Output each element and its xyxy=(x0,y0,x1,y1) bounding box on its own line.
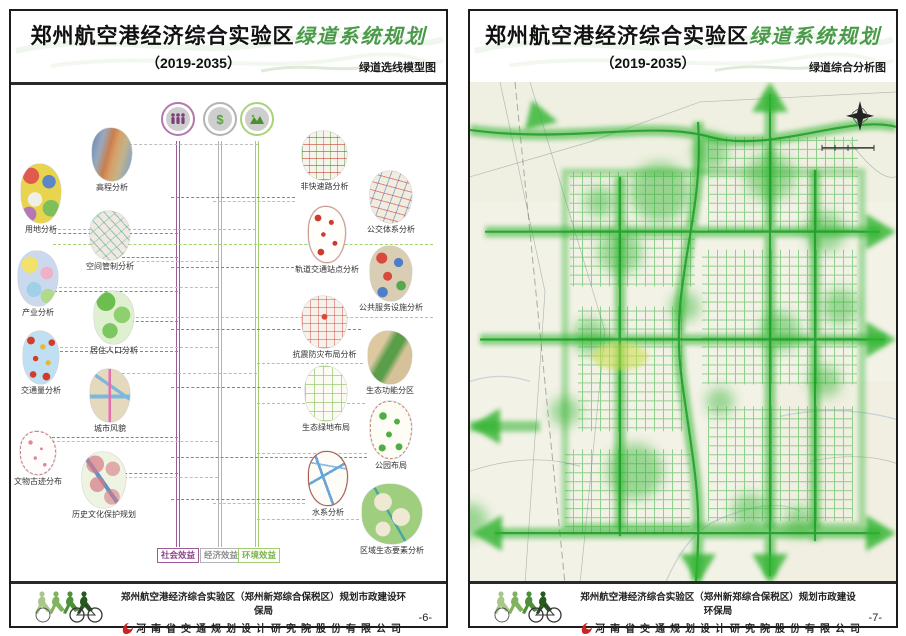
water-system-analysis-map xyxy=(308,451,348,506)
publisher-line1: 郑州航空港经济综合实验区（郑州新郑综合保税区）规划市政建设环保局 xyxy=(121,589,406,617)
connector-line xyxy=(119,473,178,474)
title-period: （2019-2035） xyxy=(470,53,826,73)
title-period: （2019-2035） xyxy=(11,53,376,73)
analysis-thumbnail: 产业分析 xyxy=(18,251,58,306)
heritage-distribution-map xyxy=(20,431,56,475)
rail-station-analysis-map xyxy=(308,206,346,263)
page-header: 郑州航空港经济综合实验区绿道系统规划 （2019-2035） 绿道选线模型图 xyxy=(11,11,446,85)
thumbnail-label: 居住人口分析 xyxy=(90,345,138,356)
transit-system-analysis-map xyxy=(370,171,412,223)
thumbnail-label: 用地分析 xyxy=(25,224,57,235)
page-footer: 郑州航空港经济综合实验区（郑州新郑综合保税区）规划市政建设环保局 河南省交通规划… xyxy=(470,581,896,626)
park-layout-map xyxy=(370,401,412,459)
analysis-thumbnail: 非快速路分析 xyxy=(302,131,347,180)
connector-line xyxy=(213,503,305,504)
analysis-thumbnail: 交通量分析 xyxy=(23,331,59,384)
thumbnail-label: 区域生态要素分析 xyxy=(360,545,424,556)
publisher-line2: 河南省交通规划设计研究院股份有限公司 xyxy=(580,620,856,635)
urban-character-map xyxy=(90,369,130,422)
industry-analysis-map xyxy=(18,251,58,306)
population-analysis-map xyxy=(94,291,134,344)
page-number: -7- xyxy=(869,612,882,624)
title-script: 绿道系统规划 xyxy=(749,26,881,48)
title-main: 郑州航空港经济综合实验区 xyxy=(485,25,749,48)
page-title: 郑州航空港经济综合实验区绿道系统规划 xyxy=(470,20,896,50)
route-selection-model-diagram: $ 社会效益 经济效益 环境效益 xyxy=(11,82,446,584)
analysis-thumbnail: 居住人口分析 xyxy=(94,291,134,344)
cyclists-logo xyxy=(29,587,113,623)
thumbnail-label: 非快速路分析 xyxy=(301,181,349,192)
elevation-analysis-map xyxy=(92,128,132,181)
cyclists-logo xyxy=(488,587,572,623)
analysis-thumbnail: 空间管制分析 xyxy=(90,211,130,260)
thumbnail-label: 城市风貌 xyxy=(94,423,126,434)
spatial-control-analysis-map xyxy=(90,211,130,260)
connector-line xyxy=(47,437,178,438)
green-space-layout-map xyxy=(305,366,347,421)
publisher-line1: 郑州航空港经济综合实验区（郑州新郑综合保税区）规划市政建设环保局 xyxy=(580,589,856,617)
regional-ecology-analysis-map xyxy=(362,484,422,544)
page-header: 郑州航空港经济综合实验区绿道系统规划 （2019-2035） 绿道综合分析图 xyxy=(470,11,896,85)
analysis-thumbnail: 轨道交通站点分析 xyxy=(308,206,346,263)
sheet-subtitle: 绿道选线模型图 xyxy=(359,59,436,75)
publisher-line2: 河南省交通规划设计研究院股份有限公司 xyxy=(121,620,406,635)
benefit-label-environmental: 环境效益 xyxy=(238,548,280,563)
analysis-thumbnail: 公共服务设施分析 xyxy=(370,246,412,301)
ecological-function-zoning-map xyxy=(368,331,412,384)
thumbnail-label: 公共服务设施分析 xyxy=(359,302,423,313)
analysis-thumbnail: 水系分析 xyxy=(308,451,348,506)
connector-line xyxy=(257,519,359,520)
landscape-icon xyxy=(249,113,265,126)
thumbnail-label: 历史文化保护规划 xyxy=(72,509,136,520)
thumbnail-label: 产业分析 xyxy=(22,307,54,318)
disaster-prevention-analysis-map xyxy=(302,296,347,348)
connector-line xyxy=(171,267,299,268)
analysis-thumbnail: 抗震防灾布局分析 xyxy=(302,296,347,348)
company-name: 河南省交通规划设计研究院股份有限公司 xyxy=(595,624,865,635)
thumbnail-label: 高程分析 xyxy=(96,182,128,193)
sheet-subtitle: 绿道综合分析图 xyxy=(809,59,886,75)
analysis-thumbnail: 文物古迹分布 xyxy=(20,431,56,475)
thumbnail-label: 轨道交通站点分析 xyxy=(295,264,359,275)
analysis-thumbnail: 高程分析 xyxy=(92,128,132,181)
connector-line xyxy=(49,287,218,288)
document-spread: { "title": { "main": "郑州航空港经济综合实验区", "sc… xyxy=(0,0,906,636)
connector-line xyxy=(171,499,305,500)
non-expressway-analysis-map xyxy=(302,131,347,180)
thumbnail-label: 公园布局 xyxy=(375,460,407,471)
company-name: 河南省交通规划设计研究院股份有限公司 xyxy=(136,624,406,635)
public-service-analysis-map xyxy=(370,246,412,301)
environmental-benefit-icon xyxy=(240,102,274,136)
analysis-map-svg xyxy=(470,82,896,584)
benefit-label-social: 社会效益 xyxy=(157,548,199,563)
highlight-patch xyxy=(592,342,648,370)
title-script: 绿道系统规划 xyxy=(295,26,427,48)
benefit-label-economic: 经济效益 xyxy=(200,548,242,563)
thumbnail-label: 公交体系分析 xyxy=(367,224,415,235)
analysis-thumbnail: 公园布局 xyxy=(370,401,412,459)
connector-line xyxy=(122,261,218,262)
social-benefit-line xyxy=(176,141,180,547)
thumbnail-label: 交通量分析 xyxy=(21,385,61,396)
connector-line xyxy=(122,257,178,258)
analysis-thumbnail: 区域生态要素分析 xyxy=(362,484,422,544)
page-footer: 郑州航空港经济综合实验区（郑州新郑综合保税区）规划市政建设环保局 河南省交通规划… xyxy=(11,581,446,626)
title-main: 郑州航空港经济综合实验区 xyxy=(31,25,295,48)
thumbnail-label: 文物古迹分布 xyxy=(14,476,62,487)
page-left: 郑州航空港经济综合实验区绿道系统规划 （2019-2035） 绿道选线模型图 $… xyxy=(9,9,448,628)
connector-line xyxy=(47,441,218,442)
thumbnail-label: 生态绿地布局 xyxy=(302,422,350,433)
thumbnail-label: 抗震防灾布局分析 xyxy=(293,349,357,360)
thumbnail-label: 空间管制分析 xyxy=(86,261,134,272)
page-right: 郑州航空港经济综合实验区绿道系统规划 （2019-2035） 绿道综合分析图 xyxy=(468,9,898,628)
connector-line xyxy=(119,477,218,478)
historic-culture-protection-map xyxy=(82,452,126,508)
page-number: -6- xyxy=(419,612,432,624)
social-benefit-icon xyxy=(161,102,195,136)
connector-line xyxy=(124,144,258,145)
connector-line xyxy=(171,387,301,388)
greenway-analysis-map xyxy=(470,82,896,584)
people-icon xyxy=(169,112,187,126)
publisher-block: 郑州航空港经济综合实验区（郑州新郑综合保税区）规划市政建设环保局 河南省交通规划… xyxy=(121,589,406,635)
connector-line xyxy=(122,373,257,374)
traffic-volume-analysis-map xyxy=(23,331,59,384)
connector-line xyxy=(257,363,363,364)
thumbnail-label: 水系分析 xyxy=(312,507,344,518)
company-logo-icon xyxy=(580,622,593,635)
publisher-block: 郑州航空港经济综合实验区（郑州新郑综合保税区）规划市政建设环保局 河南省交通规划… xyxy=(580,589,856,635)
connector-line xyxy=(126,317,433,318)
analysis-thumbnail: 生态功能分区 xyxy=(368,331,412,384)
economic-benefit-icon: $ xyxy=(203,102,237,136)
analysis-thumbnail: 公交体系分析 xyxy=(370,171,412,223)
analysis-thumbnail: 城市风貌 xyxy=(90,369,130,422)
thumbnail-label: 生态功能分区 xyxy=(366,385,414,396)
landuse-analysis-map xyxy=(21,164,61,223)
analysis-thumbnail: 用地分析 xyxy=(21,164,61,223)
dollar-icon: $ xyxy=(216,112,223,127)
connector-line xyxy=(171,197,295,198)
connector-line xyxy=(53,229,256,230)
company-logo-icon xyxy=(121,622,134,635)
page-title: 郑州航空港经济综合实验区绿道系统规划 xyxy=(11,20,446,50)
analysis-thumbnail: 历史文化保护规划 xyxy=(82,452,126,508)
analysis-thumbnail: 生态绿地布局 xyxy=(305,366,347,421)
connector-line xyxy=(213,201,295,202)
